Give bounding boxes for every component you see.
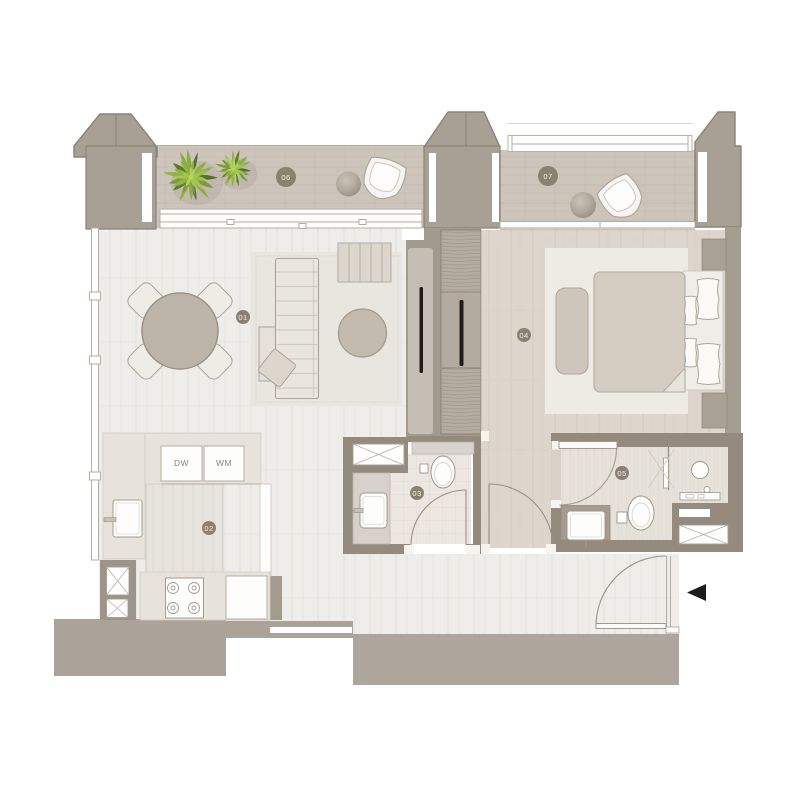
svg-text:04: 04 (519, 331, 528, 340)
svg-text:05: 05 (617, 469, 626, 478)
svg-text:03: 03 (412, 489, 421, 498)
svg-text:WM: WM (216, 458, 232, 468)
svg-text:06: 06 (281, 173, 290, 182)
svg-text:DW: DW (174, 458, 189, 468)
svg-text:07: 07 (543, 172, 552, 181)
svg-text:01: 01 (238, 313, 247, 322)
svg-text:02: 02 (204, 524, 213, 533)
